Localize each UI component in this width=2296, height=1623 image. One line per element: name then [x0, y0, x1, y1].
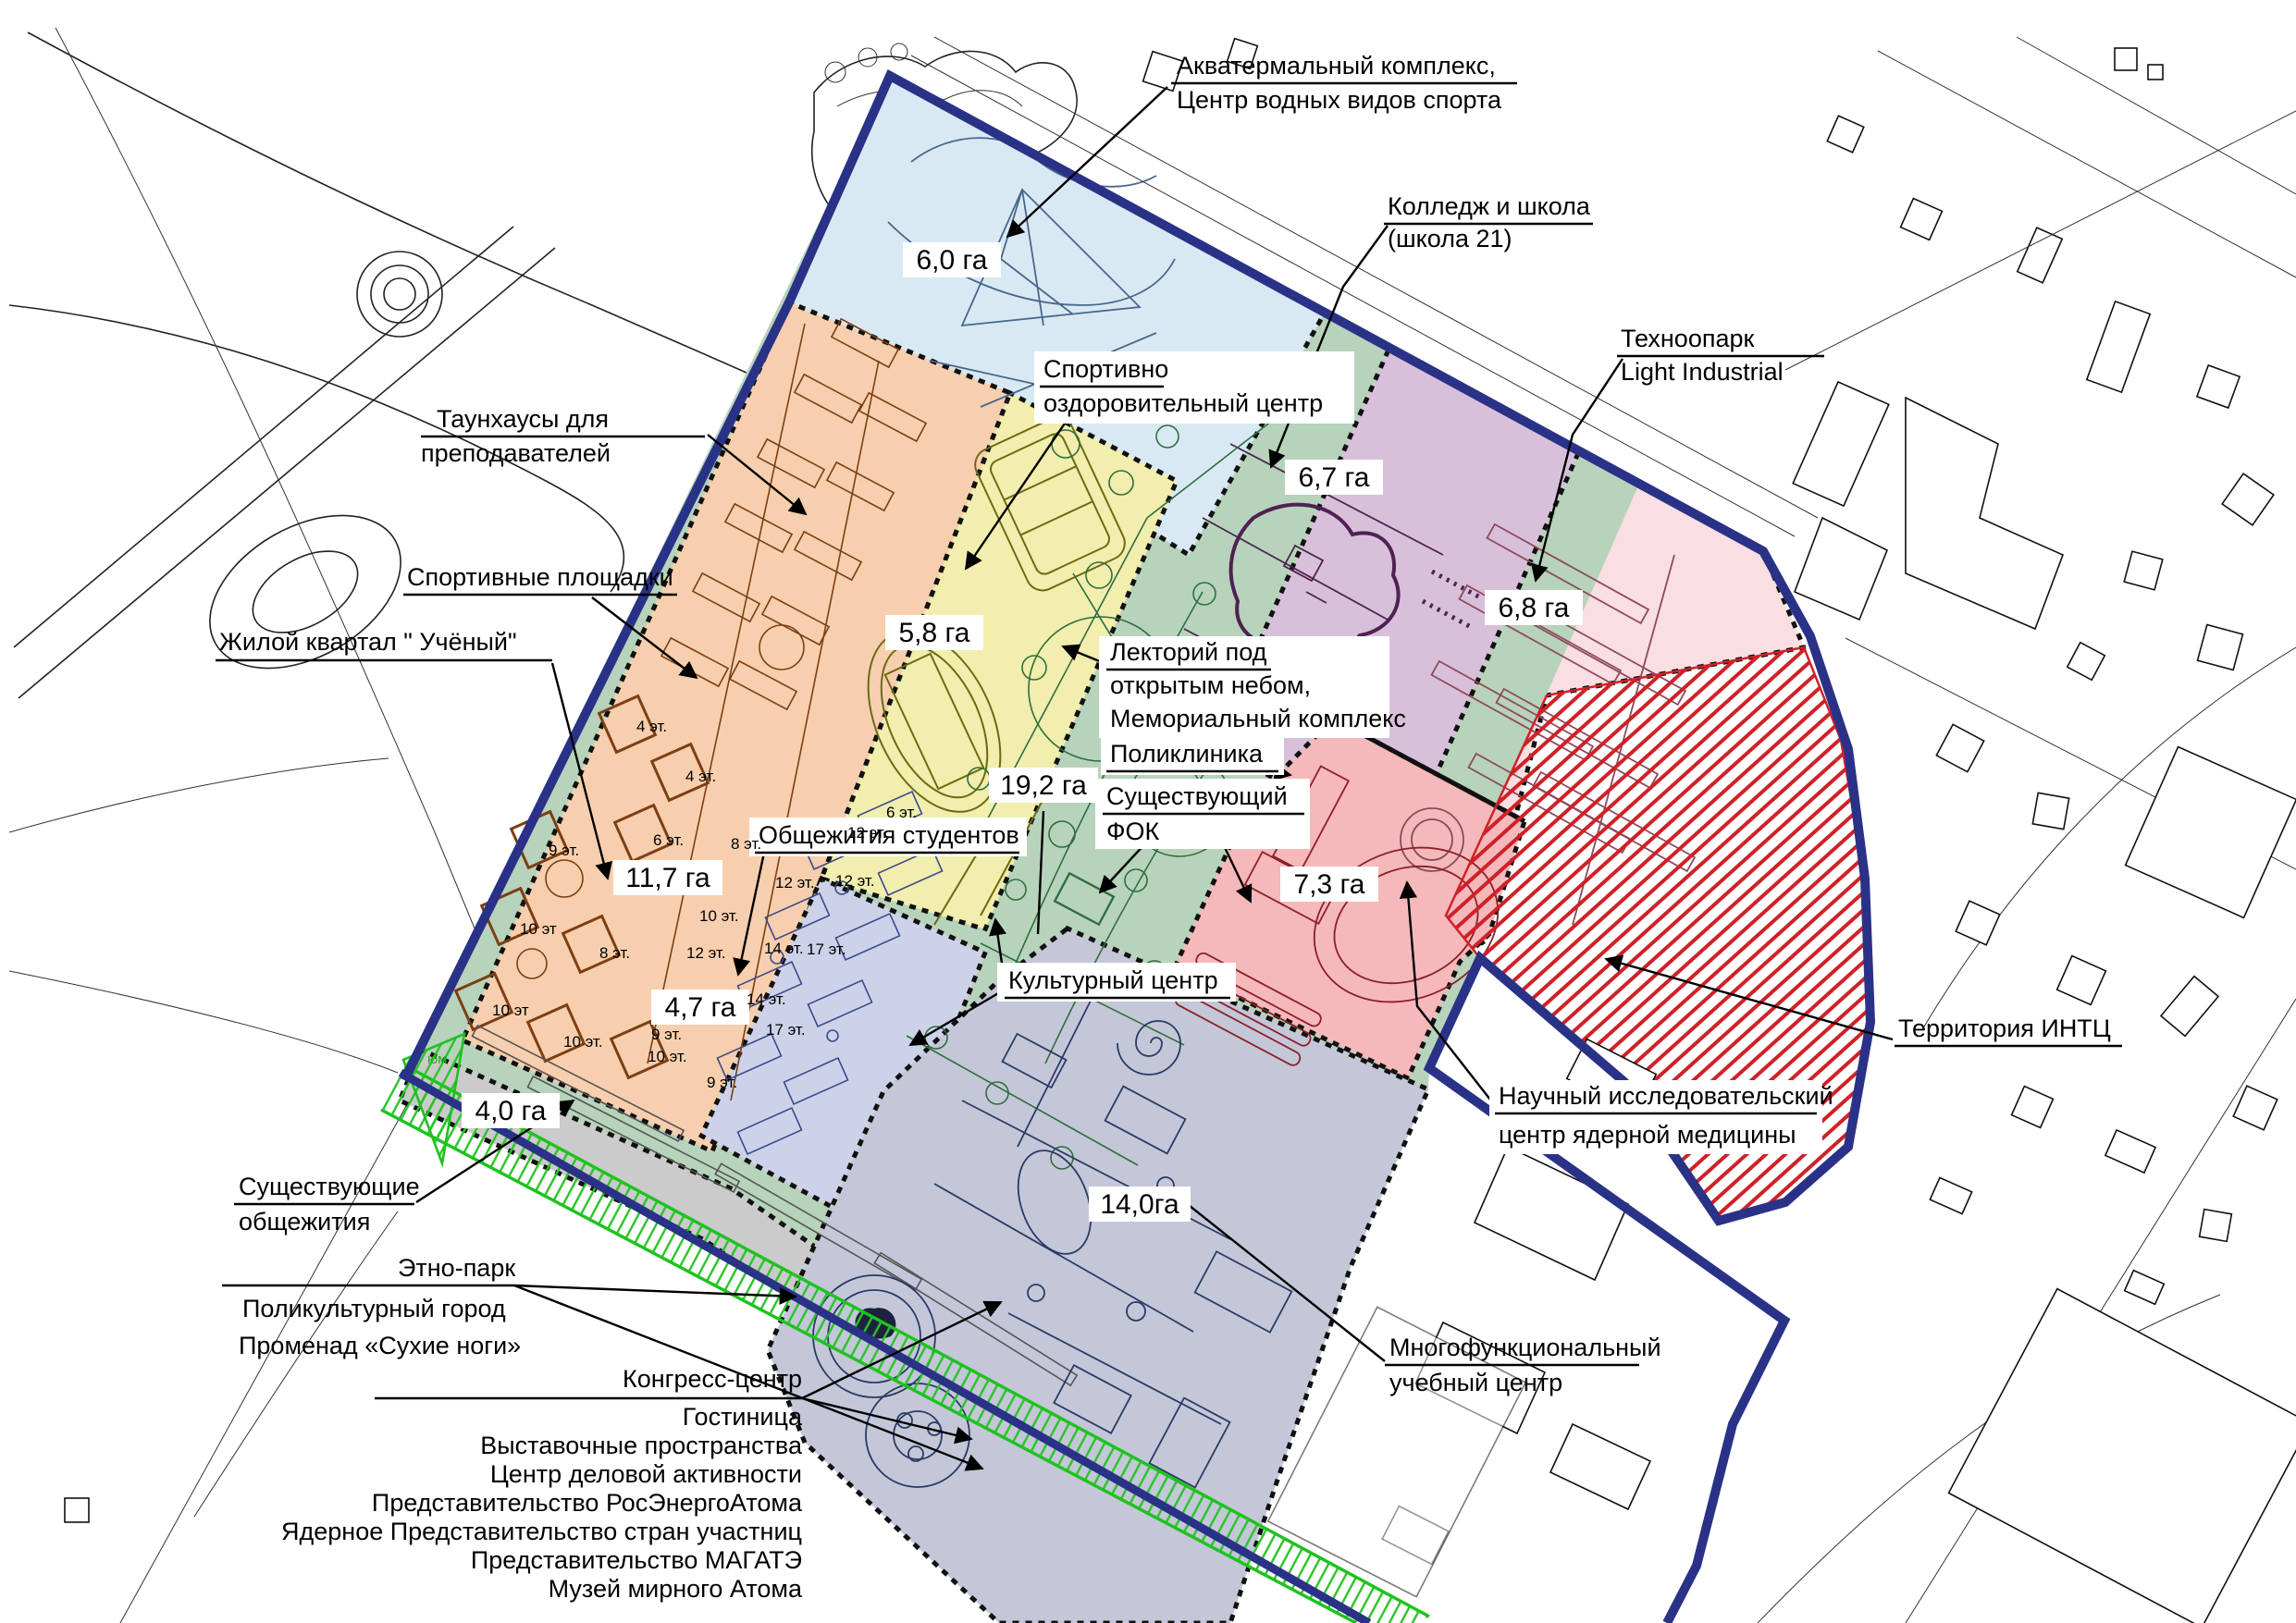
floor-label: 10 эт: [520, 920, 557, 938]
area-school: 6,7 га: [1285, 460, 1383, 495]
area-medical: 7,3 га: [1280, 867, 1378, 902]
svg-text:4,0 га: 4,0 га: [475, 1096, 546, 1126]
etno-park-label: Этно-парк Поликультурный город Променад …: [222, 1254, 521, 1359]
area-dorms: 4,7 га: [651, 990, 749, 1025]
masterplan-map: Акватермальный комплекс, Центр водных ви…: [0, 0, 2296, 1623]
floor-label: 10 эт.: [648, 1048, 687, 1065]
area-townhouses: 11,7 га: [613, 860, 722, 895]
svg-text:Общежития студентов: Общежития студентов: [759, 821, 1019, 849]
svg-text:Конгресс-центр: Конгресс-центр: [623, 1365, 802, 1393]
fok-label: Существующий ФОК: [1095, 779, 1310, 849]
floor-label: 14 эт.: [747, 990, 786, 1008]
svg-text:(школа 21): (школа 21): [1388, 225, 1512, 252]
floor-label: 9 эт.: [651, 1026, 682, 1043]
svg-text:открытым небом,: открытым небом,: [1110, 671, 1311, 699]
svg-text:преподавателей: преподавателей: [421, 439, 611, 467]
svg-text:Лекторий под: Лекторий под: [1110, 638, 1267, 666]
floor-label: 4 эт.: [685, 768, 716, 785]
lectorium-label: Лекторий под открытым небом, Мемориальны…: [1099, 636, 1406, 738]
svg-text:14,0га: 14,0га: [1100, 1189, 1179, 1220]
svg-text:Спортивно: Спортивно: [1043, 355, 1168, 383]
list-item: Представительство МАГАТЭ: [471, 1546, 802, 1574]
area-congress: 14,0га: [1089, 1187, 1191, 1222]
svg-text:Научный исследовательский: Научный исследовательский: [1499, 1082, 1833, 1110]
svg-text:Многофункциональный: Многофункциональный: [1389, 1334, 1661, 1361]
area-existing-dorms: 4,0 га: [462, 1093, 560, 1128]
svg-text:4,7 га: 4,7 га: [664, 992, 735, 1023]
list-item: Ядерное Представительство стран участниц: [281, 1518, 802, 1545]
svg-text:Культурный центр: Культурный центр: [1008, 966, 1218, 994]
sport-center-label: Спортивно оздоровительный центр: [1034, 351, 1354, 424]
floor-label: 14 эт.: [764, 940, 804, 957]
congress-label: Конгресс-центр ГостиницаВыставочные прос…: [281, 1365, 803, 1603]
area-aqua: 6,0 га: [903, 242, 1001, 277]
svg-text:6,0 га: 6,0 га: [916, 245, 987, 276]
culture-center-label: Культурный центр: [997, 963, 1236, 1002]
svg-text:Колледж и школа: Колледж и школа: [1388, 192, 1591, 220]
svg-text:Поликлиника: Поликлиника: [1110, 740, 1264, 768]
polyclinic-label: Поликлиника: [1101, 736, 1284, 775]
svg-text:Существующие: Существующие: [239, 1173, 420, 1200]
existing-dorms-label: Существующие общежития: [234, 1173, 420, 1236]
list-item: Выставочные пространства: [480, 1432, 803, 1459]
floor-label: 8 эт.: [599, 944, 630, 962]
svg-text:учебный центр: учебный центр: [1389, 1369, 1562, 1396]
area-sport: 5,8 га: [885, 615, 983, 650]
congress-program-list: ГостиницаВыставочные пространстваЦентр д…: [281, 1403, 803, 1603]
svg-text:центр ядерной медицины: центр ядерной медицины: [1499, 1121, 1796, 1149]
svg-text:Центр водных видов спорта: Центр водных видов спорта: [1177, 86, 1502, 114]
floor-label: 17 эт.: [766, 1021, 806, 1039]
floor-label: 10 эт.: [699, 907, 739, 925]
svg-text:Существующий: Существующий: [1106, 782, 1288, 810]
science-center-label: Научный исследовательский центр ядерной …: [1489, 1080, 1833, 1154]
college-label: Колледж и школа (школа 21): [1384, 192, 1593, 252]
svg-text:11,7 га: 11,7 га: [625, 863, 710, 893]
floor-label: 10 эт: [492, 1002, 529, 1019]
floor-label: 4 эт.: [636, 718, 667, 735]
svg-text:Light Industrial: Light Industrial: [1621, 358, 1784, 386]
floor-label: 9 эт.: [707, 1074, 737, 1091]
svg-text:Таунхаусы для: Таунхаусы для: [437, 405, 609, 433]
svg-text:Мемориальный комплекс: Мемориальный комплекс: [1110, 705, 1406, 732]
sport-grounds-label: Спортивные площадки: [403, 563, 677, 595]
svg-text:Акватермальный комплекс,: Акватермальный комплекс,: [1177, 52, 1496, 80]
floor-label: 12 эт.: [686, 944, 726, 962]
mfc-label: Многофункциональный учебный центр: [1385, 1334, 1661, 1396]
floor-label: 12 эт.: [775, 874, 815, 891]
masterplan-page: Акватермальный комплекс, Центр водных ви…: [0, 0, 2296, 1623]
svg-text:Жилой квартал " Учёный": Жилой квартал " Учёный": [219, 628, 517, 656]
svg-text:Этно-парк: Этно-парк: [398, 1254, 515, 1282]
floor-label: 10 эт.: [563, 1033, 603, 1051]
svg-text:ФОК: ФОК: [1106, 818, 1160, 845]
list-item: Представительство РосЭнергоАтома: [372, 1489, 803, 1517]
technopark-label: Техноопарк Light Industrial: [1617, 325, 1824, 386]
svg-text:7,3 га: 7,3 га: [1293, 869, 1364, 900]
promenade-micro-label: юм: [427, 1051, 447, 1067]
svg-text:Променад «Сухие ноги»: Променад «Сухие ноги»: [239, 1332, 521, 1359]
townhouses-label: Таунхаусы для преподавателей: [421, 405, 705, 467]
svg-text:5,8 га: 5,8 га: [898, 618, 969, 648]
aquathermal-label: Акватермальный комплекс, Центр водных ви…: [1171, 52, 1517, 114]
svg-text:Спортивные площадки: Спортивные площадки: [407, 563, 673, 591]
svg-text:Территория ИНТЦ: Территория ИНТЦ: [1898, 1014, 2111, 1042]
intc-label: Территория ИНТЦ: [1895, 1014, 2122, 1046]
svg-text:Техноопарк: Техноопарк: [1621, 325, 1754, 352]
svg-text:6,8 га: 6,8 га: [1498, 593, 1569, 623]
floor-label: 9 эт.: [549, 842, 579, 859]
area-technopark: 6,8 га: [1485, 590, 1583, 625]
list-item: Центр деловой активности: [490, 1460, 802, 1488]
floor-label: 8 эт.: [731, 835, 761, 853]
floor-label: 12 эт.: [835, 872, 875, 890]
svg-text:19,2 га: 19,2 га: [1000, 770, 1087, 801]
svg-text:Поликультурный город: Поликультурный город: [242, 1295, 506, 1322]
area-park: 19,2 га: [989, 768, 1098, 803]
list-item: Гостиница: [683, 1403, 803, 1431]
floor-label: 17 эт.: [807, 941, 846, 958]
floor-label: 12 эт.: [847, 824, 887, 842]
floor-label: 6 эт.: [653, 831, 684, 849]
floor-label: 6 эт.: [886, 804, 917, 821]
dorm-students-label: Общежития студентов: [749, 818, 1027, 856]
list-item: Музей мирного Атома: [549, 1575, 803, 1603]
svg-text:6,7 га: 6,7 га: [1298, 462, 1369, 493]
svg-text:общежития: общежития: [239, 1208, 370, 1236]
svg-text:оздоровительный центр: оздоровительный центр: [1043, 389, 1323, 417]
residential-label: Жилой квартал " Учёный": [216, 628, 552, 660]
